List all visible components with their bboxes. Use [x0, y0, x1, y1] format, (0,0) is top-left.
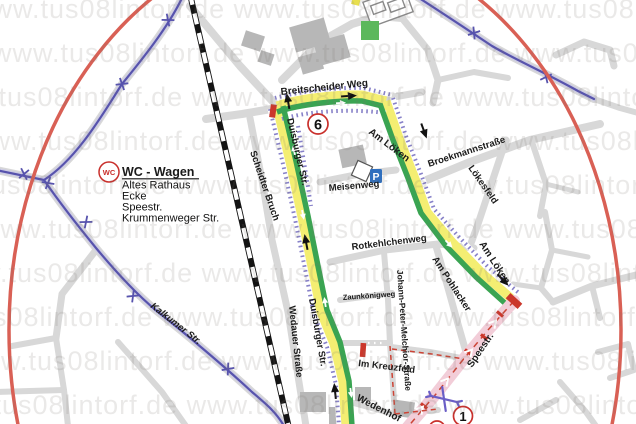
street-map: P 6 1 WC WC - Wagen Altes Rathaus Ecke S…	[0, 0, 636, 424]
stop-marker-1-number: 1	[459, 409, 466, 424]
yellow-road-stub	[351, 0, 361, 6]
blue-road-cross-ticks	[19, 14, 552, 376]
label-kalkumer-str: Kalkumer Str.	[148, 301, 203, 347]
stop-marker-6-number: 6	[314, 118, 322, 134]
wc-note: WC WC - Wagen Altes Rathaus Ecke Speestr…	[99, 162, 219, 225]
map-stage: P 6 1 WC WC - Wagen Altes Rathaus Ecke S…	[0, 0, 636, 424]
stop-marker-6: 6	[308, 114, 328, 134]
wc-badge: WC	[103, 168, 116, 177]
sports-field-green	[361, 21, 379, 40]
label-wedauer-strasse: Wedauer Straße	[286, 305, 304, 378]
wc-note-title: WC - Wagen	[122, 165, 194, 179]
wc-note-line4: Krummenweger Str.	[122, 213, 219, 225]
